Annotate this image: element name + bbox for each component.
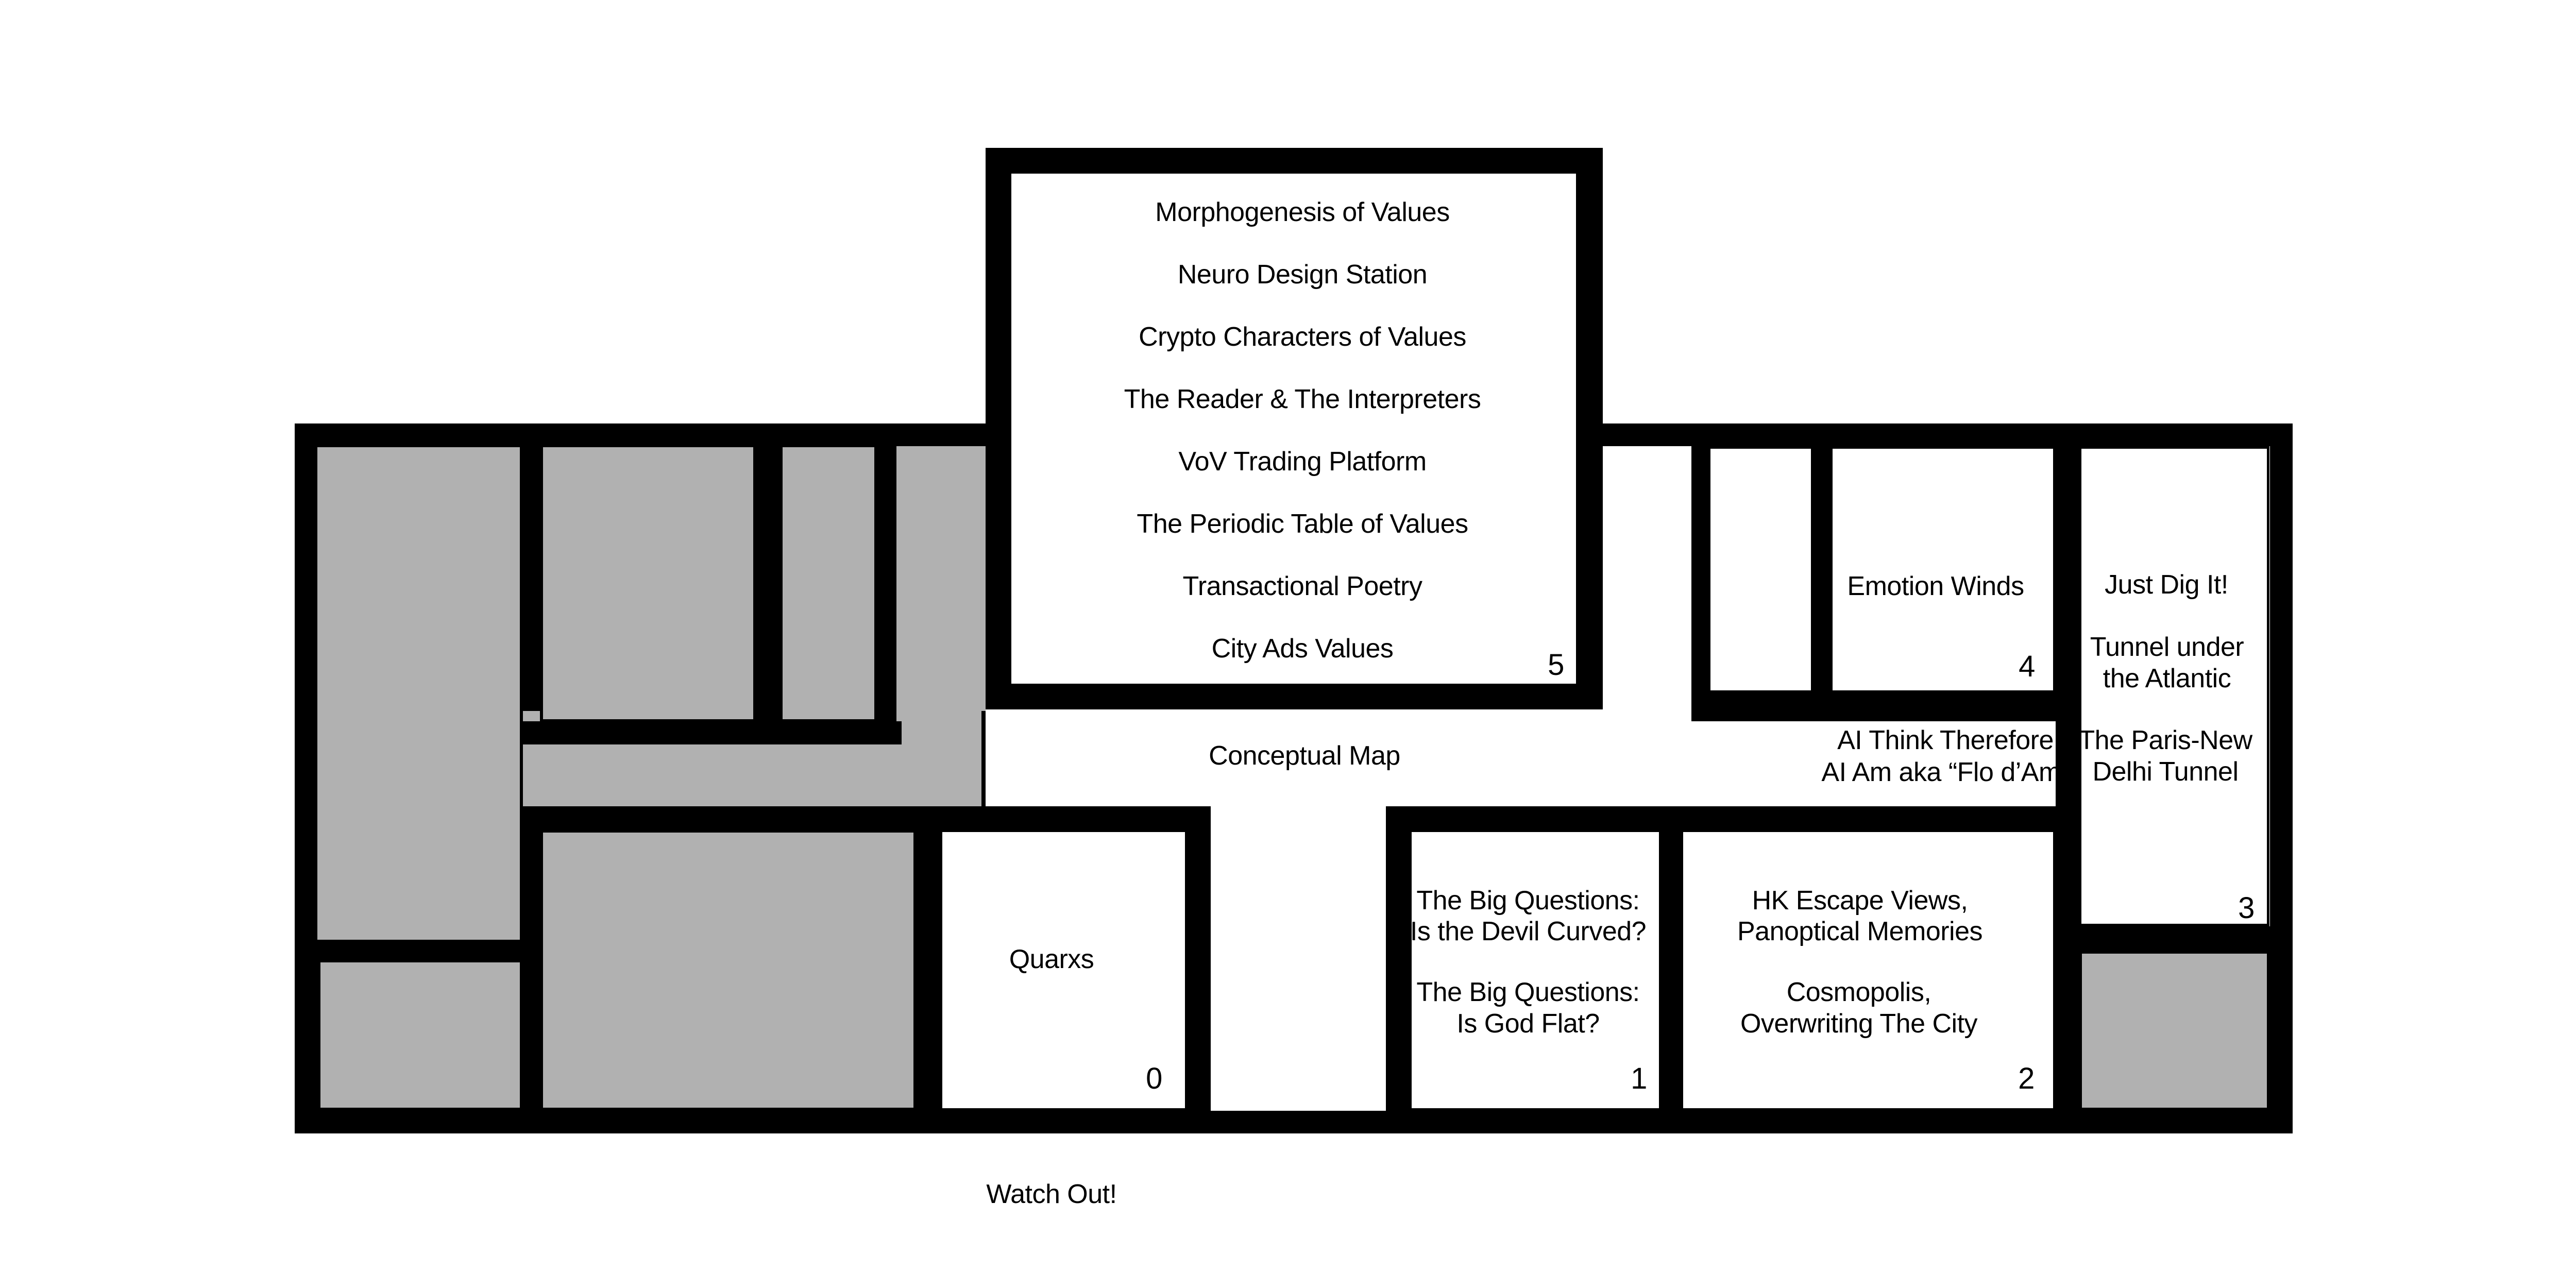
wall-rooms12-left bbox=[1386, 806, 1409, 1133]
wall-rooms12-top bbox=[1386, 806, 2074, 829]
room2-line-4: Overwriting The City bbox=[1740, 1010, 1977, 1037]
room4-number: 4 bbox=[2019, 652, 2035, 682]
room5-exhibit-6: The Periodic Table of Values bbox=[1137, 511, 1468, 537]
room3-line-5: Delhi Tunnel bbox=[2092, 758, 2238, 785]
room5-exhibit-7: Transactional Poetry bbox=[1183, 573, 1422, 600]
gray-room-bottom-right bbox=[2079, 951, 2270, 1111]
wall-room5-top bbox=[986, 148, 1603, 171]
room5-number: 5 bbox=[1548, 650, 1564, 680]
wall-rightblock-left bbox=[1691, 423, 1708, 721]
room1-number: 1 bbox=[1631, 1064, 1647, 1094]
room3-line-1: Just Dig It! bbox=[2105, 571, 2228, 598]
room0-number: 0 bbox=[1146, 1064, 1162, 1094]
gray-room-c bbox=[779, 444, 877, 722]
room1-line-3: The Big Questions: bbox=[1416, 979, 1639, 1006]
wall-room0-top bbox=[520, 806, 1211, 829]
wall-outer-bottom bbox=[295, 1111, 2293, 1133]
room4-label: Emotion Winds bbox=[1847, 573, 2024, 600]
room2-interior bbox=[1681, 829, 2056, 1111]
entrance-warning: Watch Out! bbox=[986, 1181, 1116, 1208]
wall-outer-right bbox=[2270, 423, 2293, 1133]
room2-line-2: Panoptical Memories bbox=[1737, 918, 1982, 945]
wall-grayC-right bbox=[877, 423, 896, 744]
room1-interior bbox=[1409, 829, 1662, 1111]
wall-vertical-1010 bbox=[520, 806, 540, 1133]
gray-white-boundary-line bbox=[981, 711, 986, 808]
wall-outer-left bbox=[295, 423, 317, 1133]
wall-grayB-right bbox=[756, 423, 779, 744]
wall-room5-bottom bbox=[986, 686, 1603, 709]
room1-line-1: The Big Questions: bbox=[1416, 887, 1639, 914]
wall-narrow-emotion-divider bbox=[1814, 423, 1830, 721]
wall-room5-left bbox=[986, 148, 1009, 709]
wall-room0-right bbox=[1188, 806, 1211, 1133]
room0-label: Quarxs bbox=[1009, 946, 1094, 973]
room5-exhibit-4: The Reader & The Interpreters bbox=[1124, 386, 1481, 413]
room2-line-1: HK Escape Views, bbox=[1752, 887, 1968, 914]
room1-line-4: Is God Flat? bbox=[1456, 1010, 1599, 1037]
wall-room0-left bbox=[917, 806, 940, 1133]
room3-line-2: Tunnel under bbox=[2090, 634, 2244, 660]
wall-left-horizontal bbox=[295, 942, 523, 959]
room5-exhibit-8: City Ads Values bbox=[1212, 635, 1394, 662]
room3-line-4: The Paris-New bbox=[2078, 727, 2252, 754]
corridor-note-line2: AI Am aka “Flo d’Am” bbox=[1821, 759, 2069, 786]
wall-room4-bottom bbox=[1691, 693, 2074, 721]
room5-exhibit-3: Crypto Characters of Values bbox=[1139, 324, 1466, 350]
wall-room3-bottom bbox=[2074, 926, 2293, 951]
corridor-note-line1: AI Think Therefore bbox=[1837, 727, 2054, 754]
room3-number: 3 bbox=[2238, 893, 2255, 923]
wall-room1-room2-divider bbox=[1662, 806, 1681, 1133]
room2-number: 2 bbox=[2018, 1064, 2035, 1094]
gray-room-b bbox=[540, 444, 756, 722]
room5-exhibit-5: VoV Trading Platform bbox=[1178, 448, 1426, 475]
floor-plan: Morphogenesis of Values Neuro Design Sta… bbox=[0, 0, 2576, 1288]
gray-room-d bbox=[896, 444, 986, 808]
room1-line-2: Is the Devil Curved? bbox=[1410, 918, 1646, 945]
wall-grayA-right bbox=[522, 423, 540, 711]
room5-interior bbox=[1009, 171, 1579, 686]
gray-room-top-left bbox=[314, 444, 523, 943]
wall-grayBC-bottom bbox=[522, 721, 902, 744]
gray-room-bottom-left bbox=[317, 959, 523, 1111]
map-title: Conceptual Map bbox=[1209, 742, 1400, 769]
room2-line-3: Cosmopolis, bbox=[1787, 979, 1931, 1006]
gray-room-bottom-center bbox=[540, 829, 917, 1111]
wall-room5-right bbox=[1579, 148, 1603, 709]
room5-exhibit-1: Morphogenesis of Values bbox=[1155, 199, 1449, 226]
room3-line-3: the Atlantic bbox=[2103, 665, 2231, 692]
narrow-room-interior bbox=[1708, 446, 1814, 693]
room5-exhibit-2: Neuro Design Station bbox=[1178, 261, 1427, 288]
